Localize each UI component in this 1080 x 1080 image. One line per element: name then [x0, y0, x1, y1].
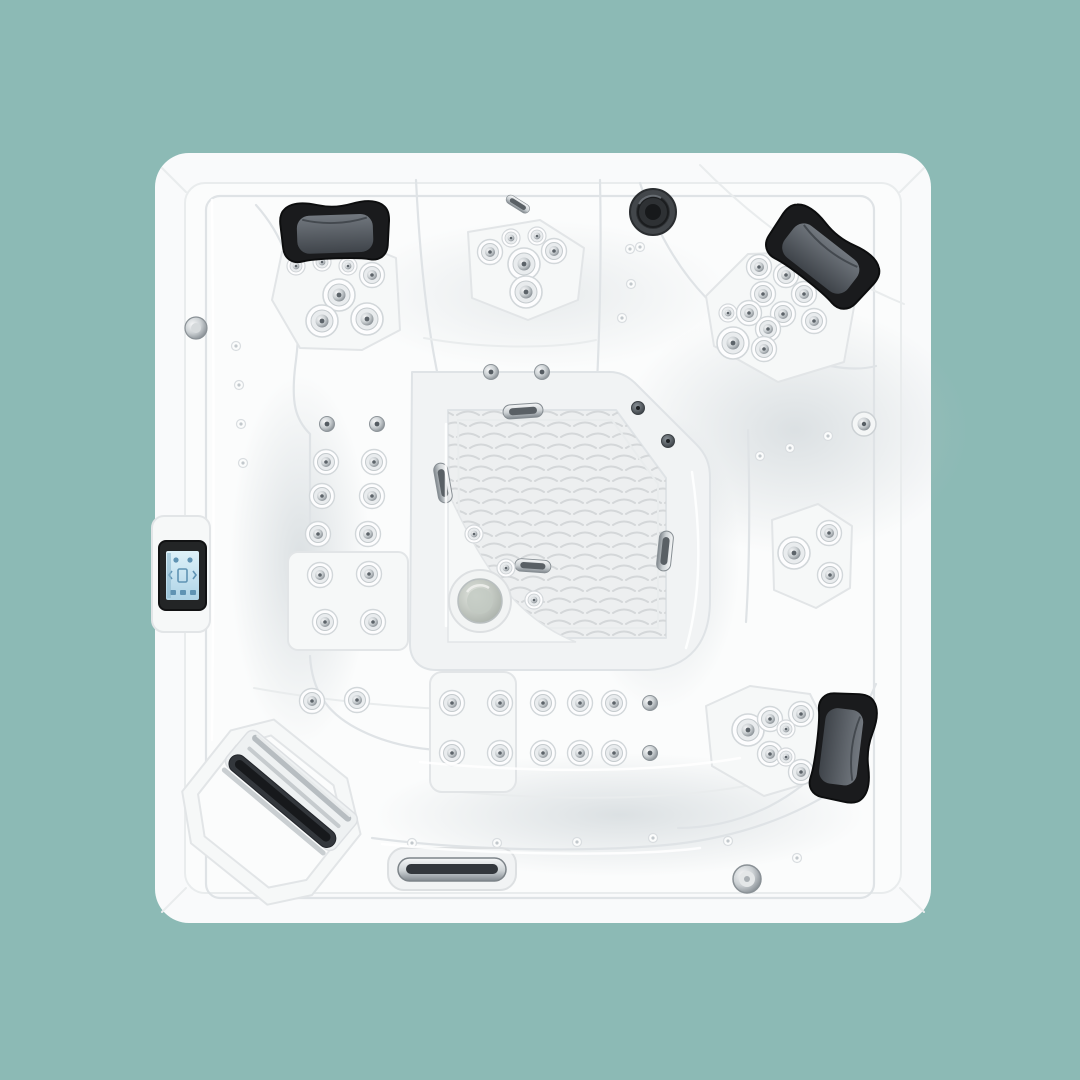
diverter-knob: [733, 865, 761, 893]
chrome-vent: [514, 558, 551, 573]
hydro-jet: [852, 412, 876, 436]
chrome-vent: [503, 403, 544, 420]
front-vent: [388, 848, 516, 890]
speaker-knob: [630, 189, 676, 235]
hydro-jet: [465, 525, 483, 543]
floor-drain: [449, 570, 511, 632]
hot-tub-product-photo: [0, 0, 1080, 1080]
rim-button: [185, 317, 207, 339]
hydro-jet: [497, 559, 515, 577]
headrest-top-left: [280, 200, 391, 262]
control-panel: [152, 516, 210, 632]
hot-tub-scene: [0, 0, 1080, 1080]
hot-tub: [152, 153, 970, 924]
headrest-bottom-right: [808, 689, 879, 804]
hydro-jet: [525, 591, 543, 609]
